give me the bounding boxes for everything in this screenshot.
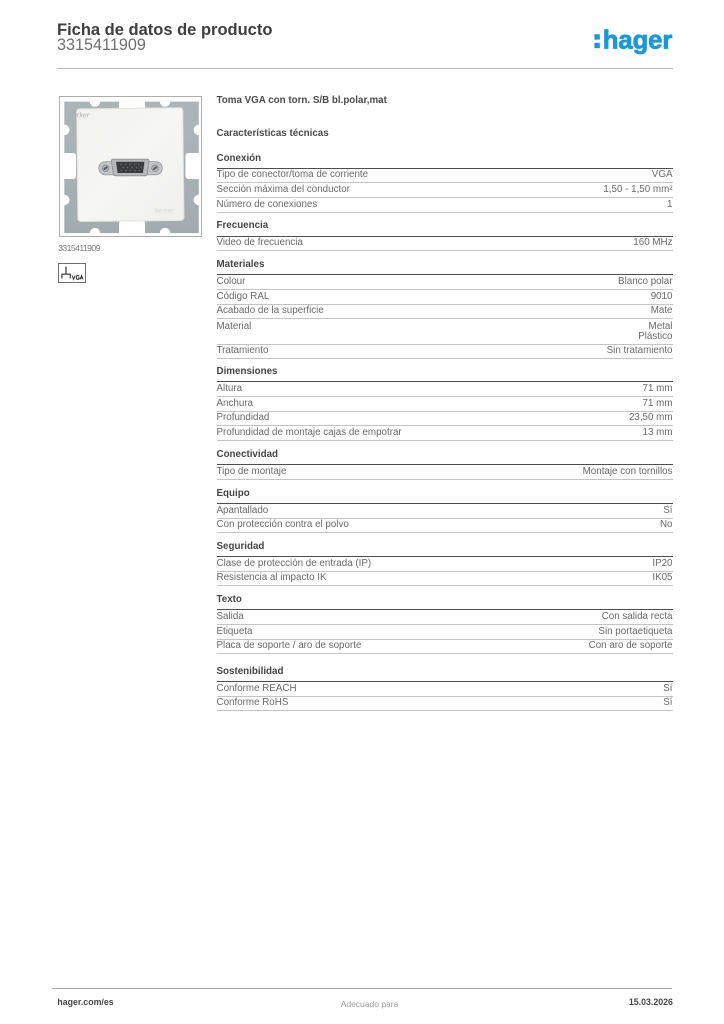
svg-text:hager: hager	[603, 27, 673, 54]
svg-text:Berker: Berker	[154, 207, 174, 214]
svg-text:Berker: Berker	[68, 112, 89, 119]
